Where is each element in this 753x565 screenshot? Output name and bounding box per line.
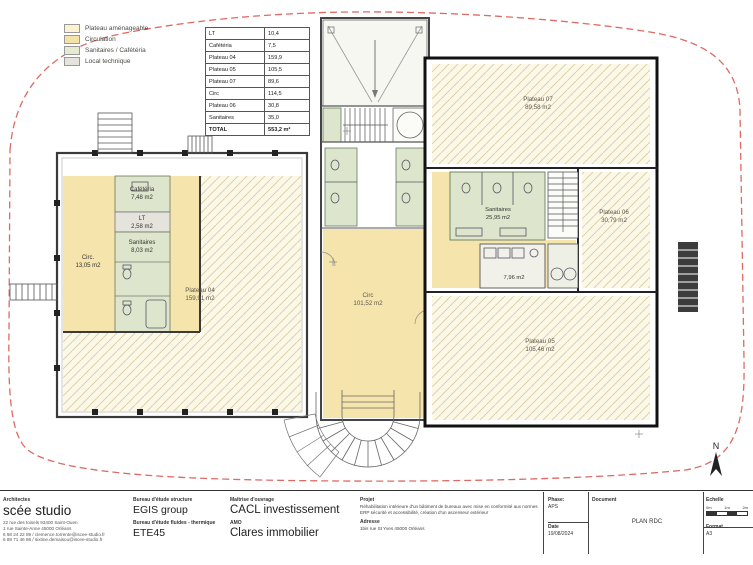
room-label-plateau-07: Plateau 07 (523, 96, 553, 103)
room-label-plateau-06: Plateau 06 (599, 209, 629, 216)
right-building: Plateau 07 89,58 m2 Sanitaires 25,95 m2 … (425, 58, 657, 426)
area-row-value: 35,0 (265, 112, 310, 124)
phase-heading: Phase: (548, 497, 584, 503)
room-area-plateau-04: 159,91 m2 (185, 295, 215, 302)
scale-tick: 2m (742, 505, 748, 510)
address-text: 1bis rue St Yves 45000 Orléans (360, 526, 540, 532)
area-row-value: 553,2 m² (265, 124, 310, 136)
room-area-cafeteria: 7,48 m2 (131, 195, 153, 201)
legend: Plateau aménageable Circulation Sanitair… (64, 24, 214, 68)
address-heading: Adresse (360, 519, 540, 525)
table-row: Plateau 0789,6 (206, 76, 310, 88)
room-plateau-05 (432, 296, 650, 420)
room-area-circ-left: 13,05 m2 (75, 263, 101, 269)
date-value: 19/08/2024 (548, 531, 584, 537)
legend-item: Sanitaires / Cafétéria (64, 46, 214, 55)
architect-block: Architectes scée studio 22 rue des toise… (3, 497, 129, 543)
north-label: N (713, 441, 720, 451)
architect-address-line: 6 89 71 46 86 / sixtine.demaisou@iscee-s… (3, 537, 129, 543)
room-label-lt: LT (139, 216, 146, 222)
room-sanitaires-right (450, 172, 545, 240)
table-row: LT10,4 (206, 28, 310, 40)
area-row-label: Plateau 04 (206, 52, 265, 64)
room-area-circ-center: 101,52 m2 (353, 300, 383, 307)
legend-swatch-local-technique (64, 57, 80, 66)
area-row-label: Plateau 06 (206, 100, 265, 112)
area-row-label: TOTAL (206, 124, 265, 136)
north-arrow-icon: N (710, 441, 722, 476)
room-plateau-06 (582, 172, 650, 288)
legend-swatch-plateau (64, 24, 80, 33)
project-text: Réhabilitation intérieure d'un bâtiment … (360, 504, 540, 515)
area-row-value: 159,9 (265, 52, 310, 64)
room-label-plateau-05: Plateau 05 (525, 338, 555, 345)
room-area-plateau-05: 105,46 m2 (525, 346, 555, 353)
titleblock-divider (588, 492, 589, 554)
phase-value: APS (548, 504, 584, 510)
project-block: Projet Réhabilitation intérieure d'un bâ… (360, 497, 540, 536)
table-row-total: TOTAL553,2 m² (206, 124, 310, 136)
area-row-label: Circ (206, 88, 265, 100)
titleblock-divider (543, 492, 544, 554)
area-row-value: 89,6 (265, 76, 310, 88)
table-row: Circ114,5 (206, 88, 310, 100)
legend-label: Plateau aménageable (85, 25, 148, 32)
room-area-sanitaires-left: 8,03 m2 (131, 248, 153, 254)
table-row: Sanitaires35,0 (206, 112, 310, 124)
exterior-stair-right (678, 242, 698, 312)
date-heading: Date (548, 524, 584, 530)
area-row-value: 10,4 (265, 28, 310, 40)
project-heading: Projet (360, 497, 540, 503)
room-label-sanitaires-right: Sanitaires (485, 207, 511, 213)
owner-block: Maîtrise d'ouvrage CACL investissement A… (230, 497, 352, 543)
owner-heading: Maîtrise d'ouvrage (230, 497, 352, 503)
document-block: Document (592, 497, 702, 504)
format-value: A3 (706, 531, 751, 537)
scale-bar: 0m 1m 2m (706, 505, 748, 515)
titleblock-divider (703, 492, 704, 554)
legend-label: Local technique (85, 58, 131, 65)
room-label-plateau-04: Plateau 04 (185, 287, 215, 294)
document-heading: Document (592, 497, 702, 503)
structure-heading: Bureau d'étude structure (133, 497, 225, 503)
scale-block: Echelle 0m 1m 2m Format A3 (706, 497, 751, 539)
exterior-stair-top-left (98, 113, 132, 153)
room-label-circ-center: Circ (363, 292, 374, 299)
room-plateau-07 (432, 64, 650, 164)
area-row-value: 114,5 (265, 88, 310, 100)
legend-label: Sanitaires / Cafétéria (85, 47, 146, 54)
legend-item: Circulation (64, 35, 214, 44)
room-label-circ-left: Circ. (82, 255, 95, 261)
scale-heading: Echelle (706, 497, 751, 503)
phase-block: Phase: APS Date 19/08/2024 (548, 497, 584, 539)
table-row: Plateau 04159,9 (206, 52, 310, 64)
legend-item: Plateau aménageable (64, 24, 214, 33)
center-tower: Circ 101,52 m2 (321, 18, 429, 420)
fluids-name: ETE45 (133, 527, 225, 539)
room-label-sanitaires-left: Sanitaires (129, 240, 156, 246)
fluids-heading: Bureau d'étude fluides - thermique (133, 520, 225, 526)
structure-name: EGIS group (133, 504, 225, 516)
titleblock-divider (703, 527, 753, 528)
legend-label: Circulation (85, 36, 116, 43)
legend-swatch-circulation (64, 35, 80, 44)
area-row-label: Cafétéria (206, 40, 265, 52)
area-table: LT10,4 Cafétéria7,5 Plateau 04159,9 Plat… (205, 27, 310, 136)
title-block: Architectes scée studio 22 rue des toise… (0, 490, 753, 565)
room-area-sanitaires-right: 25,95 m2 (486, 215, 510, 221)
room-area-lt: 2,58 m2 (131, 224, 153, 230)
drawing-sheet: Cafétéria 7,48 m2 LT 2,58 m2 Sanitaires … (0, 0, 753, 565)
area-row-value: 105,5 (265, 64, 310, 76)
area-row-value: 7,5 (265, 40, 310, 52)
titleblock-divider (548, 522, 588, 523)
room-label-cafeteria: Cafétéria (130, 187, 155, 193)
scale-tick: 1m (724, 505, 730, 510)
exterior-stair-top-mid (188, 136, 212, 153)
room-kitchenette (480, 244, 545, 288)
legend-item: Local technique (64, 57, 214, 66)
left-building: Cafétéria 7,48 m2 LT 2,58 m2 Sanitaires … (54, 150, 307, 417)
area-row-label: LT (206, 28, 265, 40)
area-row-label: Plateau 05 (206, 64, 265, 76)
table-row: Plateau 0630,8 (206, 100, 310, 112)
amo-name: Clares immobilier (230, 527, 352, 540)
fan-steps (284, 414, 339, 477)
floor-plan-svg: Cafétéria 7,48 m2 LT 2,58 m2 Sanitaires … (0, 0, 753, 565)
room-cafeteria (115, 176, 170, 212)
architect-name: scée studio (3, 504, 129, 518)
area-row-label: Sanitaires (206, 112, 265, 124)
room-sanitaires-left (115, 232, 170, 332)
document-value: PLAN RDC (592, 519, 702, 525)
room-area-plateau-07: 89,58 m2 (525, 104, 551, 111)
room-area-kitchenette: 7,96 m2 (504, 275, 525, 281)
amo-heading: AMO (230, 520, 352, 526)
table-row: Cafétéria7,5 (206, 40, 310, 52)
area-row-value: 30,8 (265, 100, 310, 112)
engineering-block: Bureau d'étude structure EGIS group Bure… (133, 497, 225, 543)
table-row: Plateau 05105,5 (206, 64, 310, 76)
room-area-plateau-06: 30,79 m2 (601, 217, 627, 224)
area-row-label: Plateau 07 (206, 76, 265, 88)
exterior-stair-left (10, 284, 57, 300)
owner-name: CACL investissement (230, 504, 352, 517)
legend-swatch-sanitaires (64, 46, 80, 55)
scale-tick: 0m (706, 505, 712, 510)
